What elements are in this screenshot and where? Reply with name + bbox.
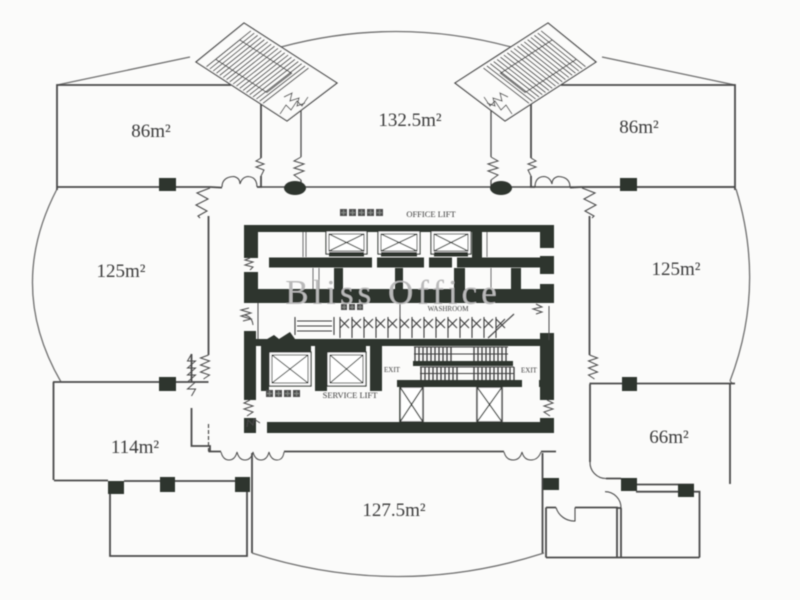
svg-text:127.5m²: 127.5m² (362, 500, 426, 521)
svg-text:EXIT: EXIT (384, 366, 401, 374)
svg-text:114m²: 114m² (111, 437, 160, 458)
svg-text:66m²: 66m² (649, 427, 689, 448)
svg-text:125m²: 125m² (97, 261, 146, 282)
svg-text:EXIT: EXIT (521, 367, 538, 375)
svg-text:SERVICE LIFT: SERVICE LIFT (323, 390, 379, 400)
svg-text:86m²: 86m² (619, 117, 659, 138)
svg-text:125m²: 125m² (652, 259, 701, 280)
svg-text:132.5m²: 132.5m² (378, 110, 442, 131)
svg-text:OFFICE LIFT: OFFICE LIFT (406, 209, 456, 219)
svg-text:Bliss Office: Bliss Office (285, 273, 501, 312)
svg-text:86m²: 86m² (131, 121, 171, 142)
